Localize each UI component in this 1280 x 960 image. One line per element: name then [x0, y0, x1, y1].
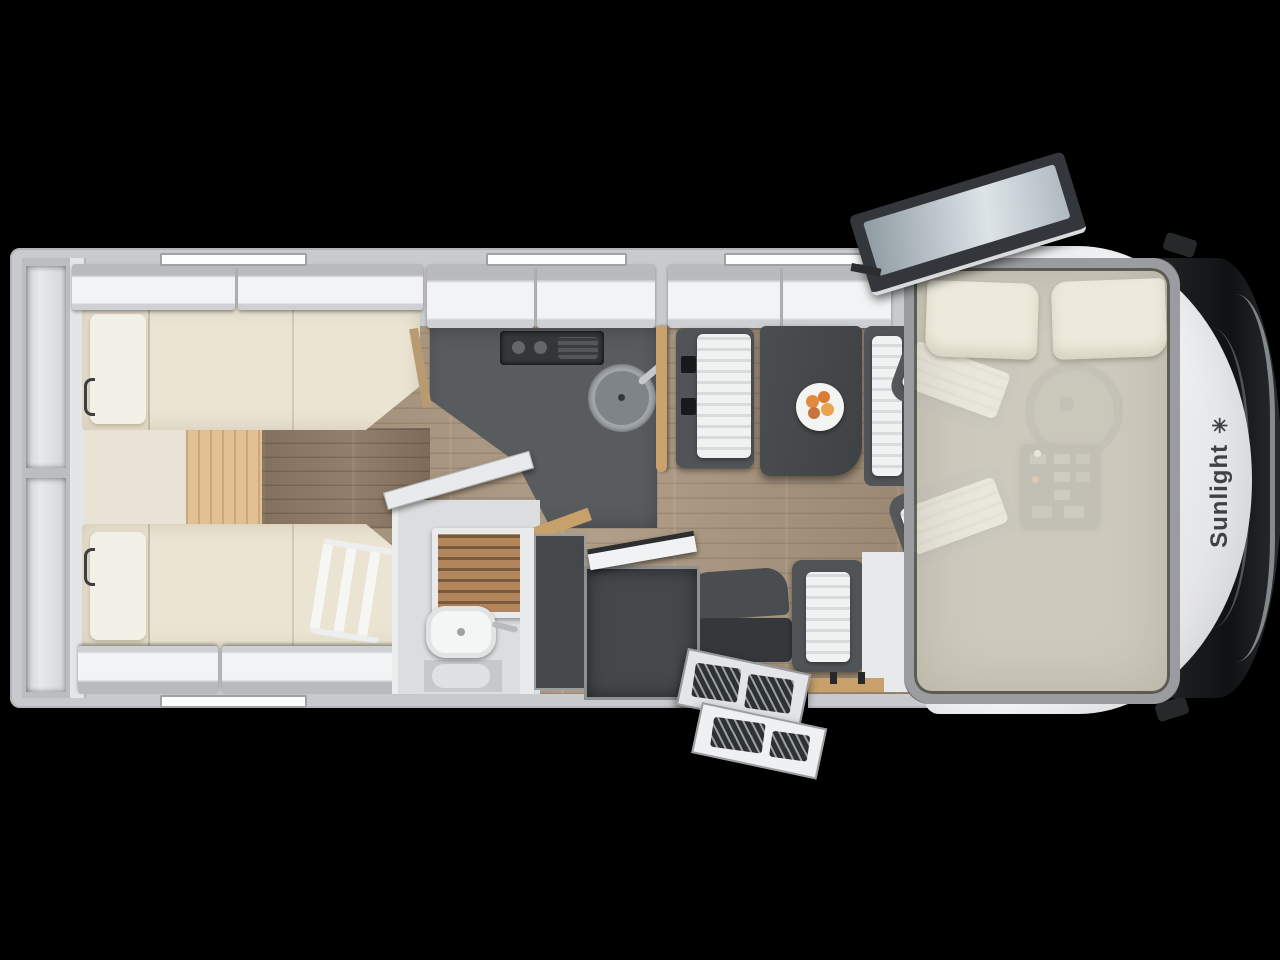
- overhead-cabinet: [222, 646, 420, 694]
- overhead-cabinet: [238, 264, 423, 310]
- overhead-cabinet: [668, 264, 780, 328]
- fruit: [808, 407, 820, 419]
- rear-garage-compartment-top: [26, 266, 66, 468]
- step-tread: [691, 663, 741, 703]
- pillow: [90, 532, 146, 640]
- kitchen-divider-panel: [656, 326, 667, 472]
- bed-seam: [148, 308, 150, 430]
- step-tread: [710, 717, 766, 754]
- dinette-cushion: [872, 336, 902, 476]
- fruit-plate-icon: [796, 383, 844, 431]
- dinette-cushion: [697, 334, 751, 458]
- overhead-cabinet: [427, 264, 534, 328]
- overhead-cabinet: [78, 646, 218, 694]
- brand-name: Sunlight: [1206, 444, 1234, 548]
- bed-ladder-icon: [309, 538, 393, 644]
- drainer-icon: [558, 337, 598, 359]
- rear-garage-compartment-bottom: [26, 478, 66, 692]
- window-strip: [486, 253, 627, 266]
- seat-latch-icon: [681, 356, 696, 373]
- tall-cabinet: [534, 534, 586, 690]
- motorhome-floorplan-render: Sunlight ✳: [0, 0, 1280, 960]
- cabinet-handle-icon: [84, 548, 95, 586]
- door-threshold: [800, 678, 884, 692]
- threshold-stop: [830, 672, 837, 684]
- brand-star-icon: ✳: [1208, 416, 1233, 434]
- burner-icon: [512, 341, 525, 354]
- pillow: [925, 280, 1040, 360]
- overhead-cabinet: [537, 264, 655, 328]
- bed-seam: [292, 524, 294, 648]
- window-strip: [724, 253, 866, 266]
- stove-icon: [500, 331, 604, 365]
- entry-door-open: [691, 702, 827, 779]
- brand-logo: Sunlight ✳: [1200, 397, 1240, 567]
- bed-base-panel: [84, 430, 186, 526]
- basin-reflection: [432, 664, 490, 688]
- cabinet-handle-icon: [84, 378, 95, 416]
- seat-latch-icon: [681, 398, 696, 415]
- entry-bench: [686, 567, 789, 622]
- threshold-stop: [858, 672, 865, 684]
- washbasin-icon: [426, 606, 496, 658]
- bathroom-divider-wall: [520, 528, 534, 694]
- burner-icon: [534, 341, 547, 354]
- fruit: [818, 391, 830, 403]
- basin-drain: [457, 628, 465, 636]
- window-strip: [160, 253, 307, 266]
- vanity-mirror-counter: [424, 660, 502, 692]
- bed-seam: [292, 308, 294, 430]
- step-tread: [769, 731, 810, 762]
- overhead-cabinet: [72, 264, 235, 310]
- travel-seat-cushion: [806, 572, 850, 662]
- side-mirror-icon: [1162, 231, 1198, 258]
- bed-seam: [148, 524, 150, 648]
- pillow: [1051, 278, 1168, 360]
- pillow: [90, 314, 146, 424]
- sink-drain: [618, 394, 625, 401]
- bed-step: [186, 430, 262, 526]
- shower-tray-icon: [432, 528, 532, 618]
- window-strip: [160, 695, 307, 708]
- fruit: [821, 403, 834, 416]
- step-tread: [744, 674, 794, 714]
